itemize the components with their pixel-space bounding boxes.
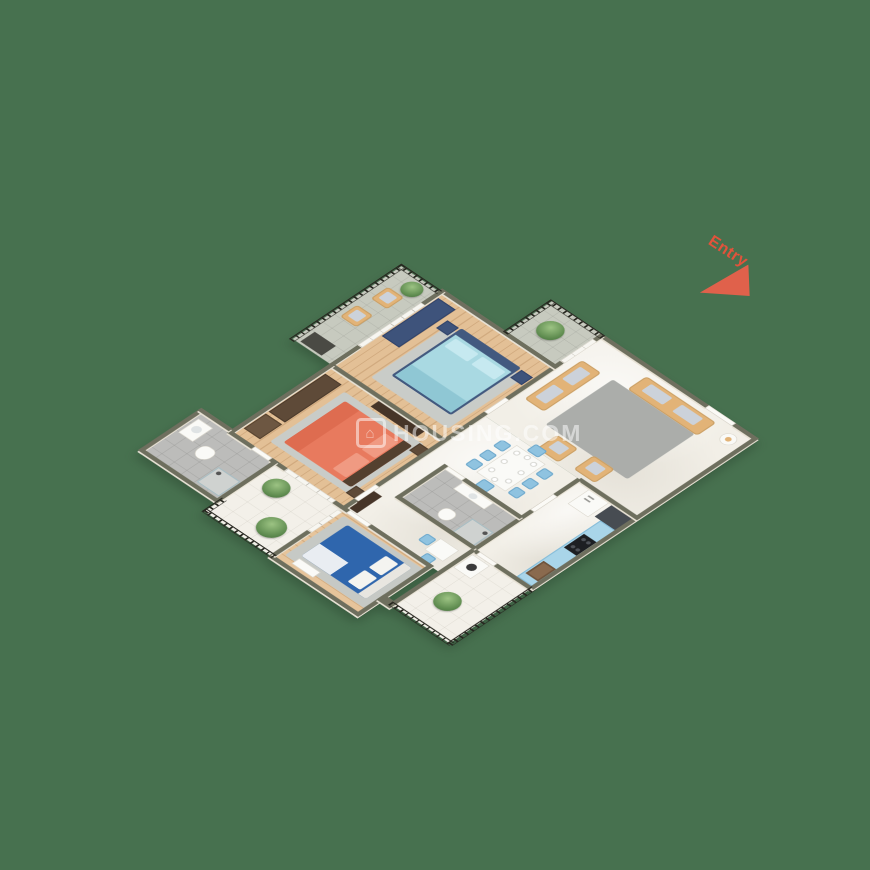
shower-head [215, 471, 223, 476]
screenshot-root: { "page": { "background_color": "#47714F… [0, 0, 870, 870]
chair-cushion [347, 309, 366, 322]
chair-cushion [378, 291, 397, 304]
place-setting [499, 458, 510, 465]
place-setting [486, 466, 497, 473]
washer-drum [464, 562, 479, 572]
place-setting [516, 469, 527, 476]
place-setting [511, 450, 522, 457]
watermark: ⌂ HOUSING.COM [356, 418, 582, 448]
watermark-text: HOUSING.COM [393, 420, 582, 447]
burner [580, 537, 587, 542]
armchair-cushion [584, 461, 606, 476]
place-setting [503, 478, 514, 485]
housing-logo-icon: ⌂ [356, 418, 386, 448]
place-setting [522, 454, 533, 461]
basin-bowl [189, 424, 204, 434]
fridge-handles [587, 495, 594, 500]
place-setting [489, 476, 500, 483]
table-lamp [723, 436, 733, 442]
place-setting [528, 461, 539, 468]
shower-head [481, 531, 489, 536]
entry-label: Entry [705, 233, 751, 272]
entry-arrow-icon [697, 265, 753, 306]
basin-bowl [467, 492, 480, 500]
